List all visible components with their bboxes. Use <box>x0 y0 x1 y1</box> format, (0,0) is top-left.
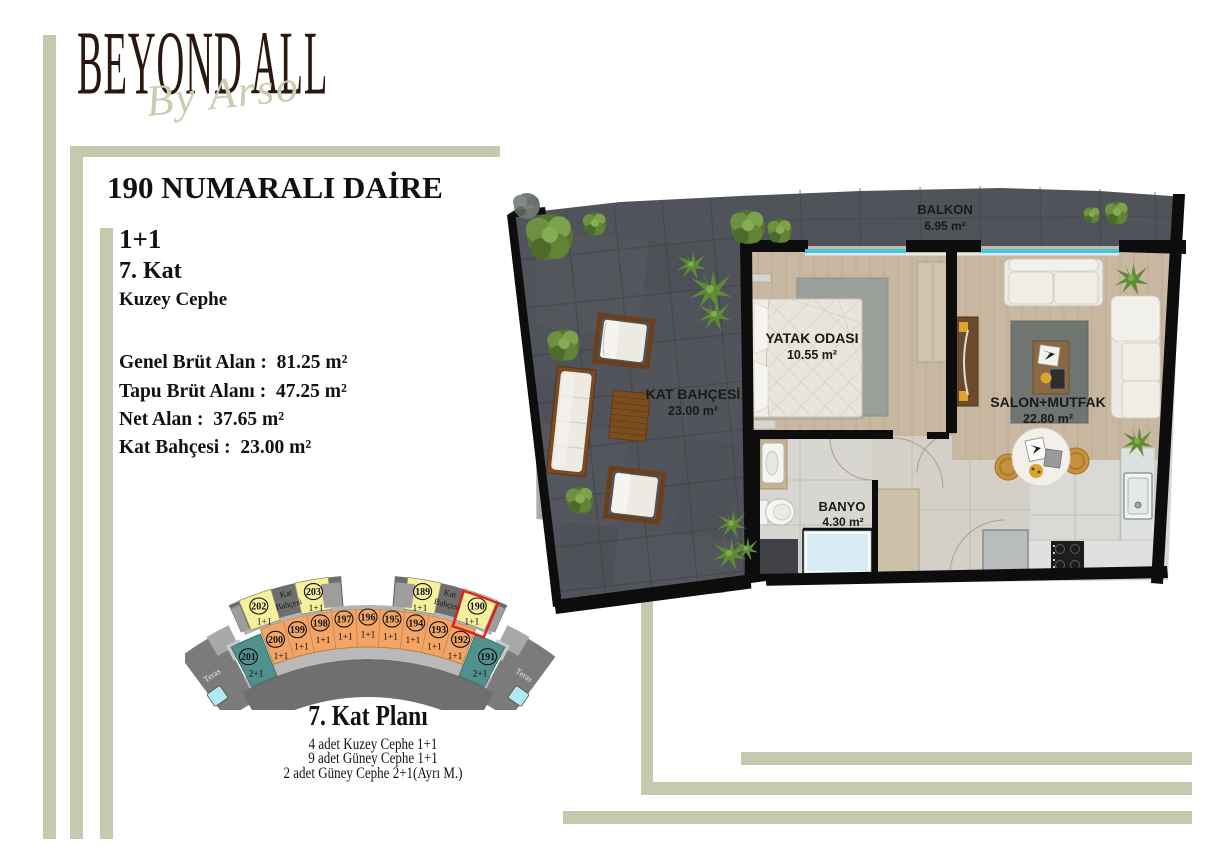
svg-text:191: 191 <box>480 652 495 663</box>
svg-text:BALKON: BALKON <box>917 202 973 217</box>
svg-text:1+1: 1+1 <box>464 618 479 628</box>
svg-text:199: 199 <box>290 625 305 636</box>
svg-text:196: 196 <box>361 613 376 624</box>
svg-text:202: 202 <box>251 602 266 613</box>
svg-text:1+1: 1+1 <box>316 636 331 646</box>
svg-text:6.95 m²: 6.95 m² <box>924 219 965 233</box>
svg-text:4.30 m²: 4.30 m² <box>822 515 863 529</box>
svg-text:201: 201 <box>241 652 256 663</box>
svg-text:1+1: 1+1 <box>309 604 324 614</box>
svg-text:2+1: 2+1 <box>473 670 488 680</box>
svg-text:1+1: 1+1 <box>412 604 427 614</box>
svg-text:200: 200 <box>268 635 283 646</box>
svg-text:YATAK ODASI: YATAK ODASI <box>765 330 858 346</box>
svg-text:195: 195 <box>385 615 400 626</box>
svg-text:SALON+MUTFAK: SALON+MUTFAK <box>990 394 1106 410</box>
svg-text:1+1: 1+1 <box>427 643 442 653</box>
svg-text:189: 189 <box>415 587 430 598</box>
svg-text:22.80 m²: 22.80 m² <box>1023 412 1073 426</box>
svg-text:1+1: 1+1 <box>405 636 420 646</box>
svg-text:1+1: 1+1 <box>338 632 353 642</box>
svg-text:192: 192 <box>453 635 468 646</box>
svg-text:194: 194 <box>408 618 423 629</box>
svg-text:198: 198 <box>313 618 328 629</box>
svg-text:1+1: 1+1 <box>257 618 272 628</box>
svg-text:190: 190 <box>470 602 485 613</box>
svg-text:197: 197 <box>337 615 352 626</box>
svg-text:1+1: 1+1 <box>448 652 463 662</box>
svg-text:KAT BAHÇESİ: KAT BAHÇESİ <box>646 386 741 402</box>
svg-text:1+1: 1+1 <box>294 643 309 653</box>
svg-text:BANYO: BANYO <box>819 499 866 514</box>
svg-text:10.55 m²: 10.55 m² <box>787 348 837 362</box>
svg-text:1+1: 1+1 <box>274 652 289 662</box>
svg-text:2+1: 2+1 <box>249 670 264 680</box>
svg-text:1+1: 1+1 <box>361 631 376 641</box>
svg-text:23.00 m²: 23.00 m² <box>668 404 718 418</box>
svg-text:203: 203 <box>306 587 321 598</box>
svg-text:193: 193 <box>431 625 446 636</box>
svg-text:1+1: 1+1 <box>383 632 398 642</box>
